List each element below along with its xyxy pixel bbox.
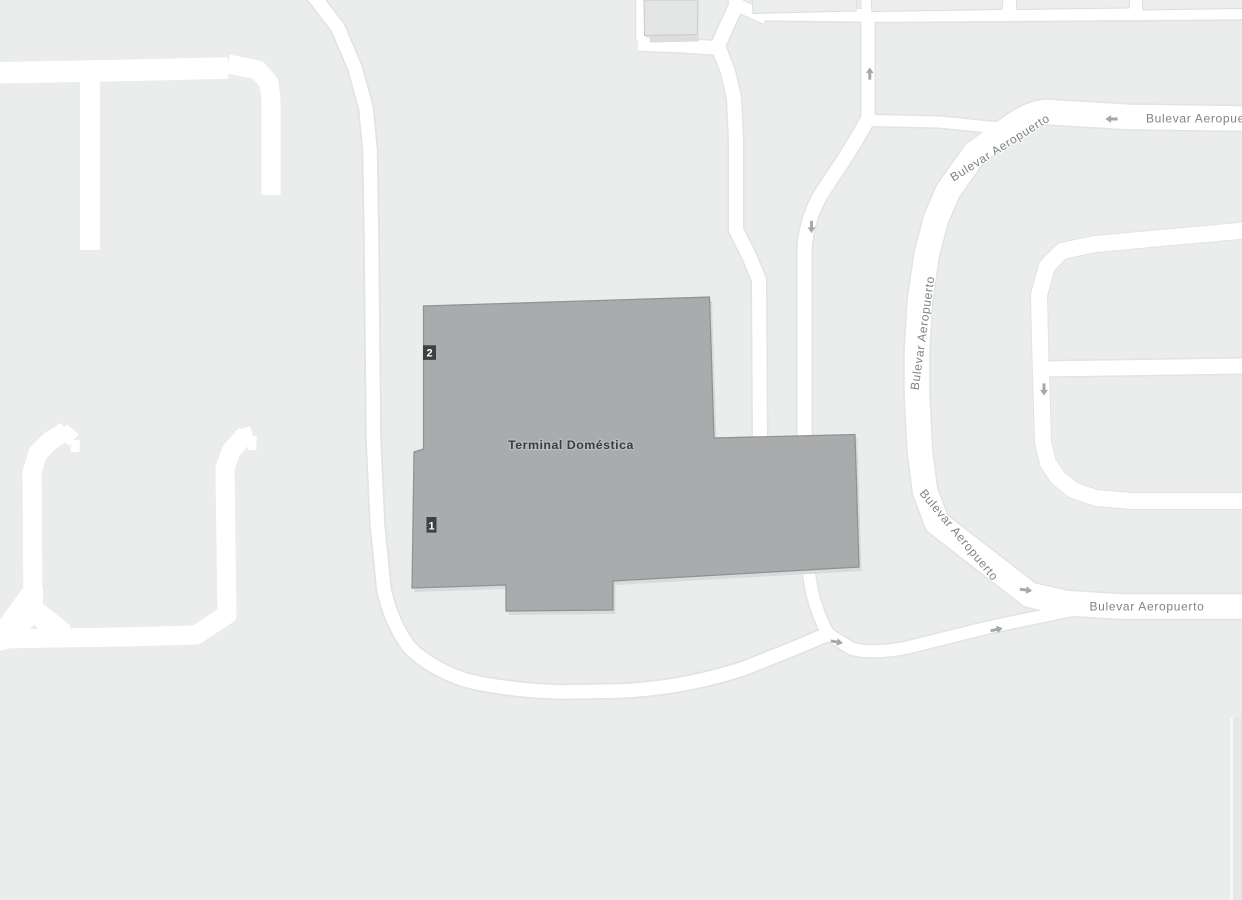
svg-text:2: 2	[427, 348, 433, 360]
svg-text:Terminal Doméstica: Terminal Doméstica	[508, 438, 634, 452]
svg-text:Bulevar Aeropuerto: Bulevar Aeropuerto	[1090, 600, 1205, 614]
svg-text:Bulevar Aeropuerto: Bulevar Aeropuerto	[1146, 112, 1242, 126]
svg-text:1: 1	[429, 521, 435, 533]
